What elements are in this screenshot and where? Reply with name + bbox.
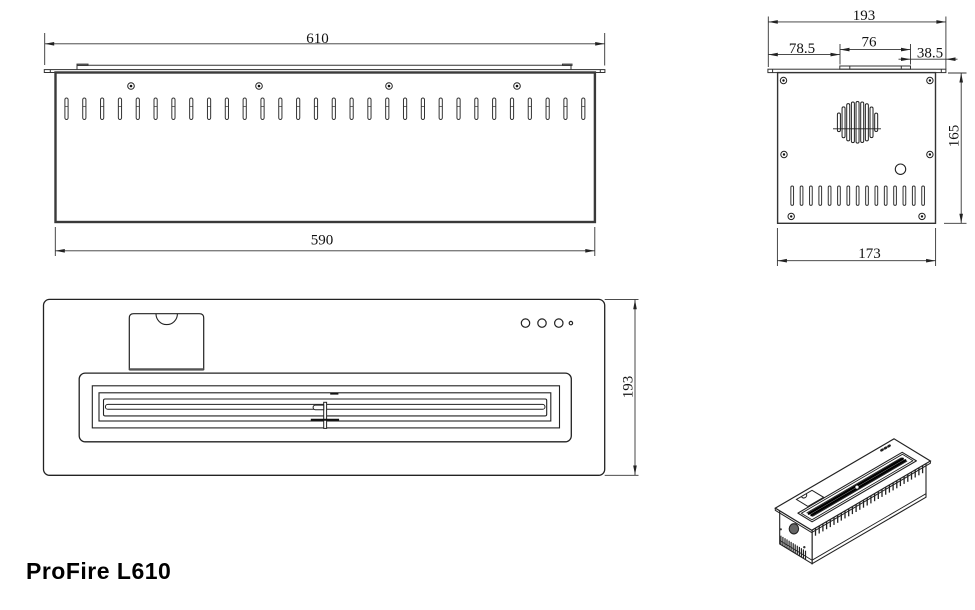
svg-text:165: 165 — [946, 125, 962, 148]
svg-text:193: 193 — [621, 376, 637, 399]
svg-text:38.5: 38.5 — [917, 45, 943, 61]
svg-text:ProFire L610: ProFire L610 — [26, 558, 171, 584]
svg-text:78.5: 78.5 — [789, 41, 815, 57]
svg-text:610: 610 — [306, 31, 329, 47]
svg-text:193: 193 — [853, 8, 876, 24]
svg-text:76: 76 — [862, 35, 878, 51]
svg-text:173: 173 — [858, 246, 881, 262]
svg-text:590: 590 — [311, 233, 334, 249]
